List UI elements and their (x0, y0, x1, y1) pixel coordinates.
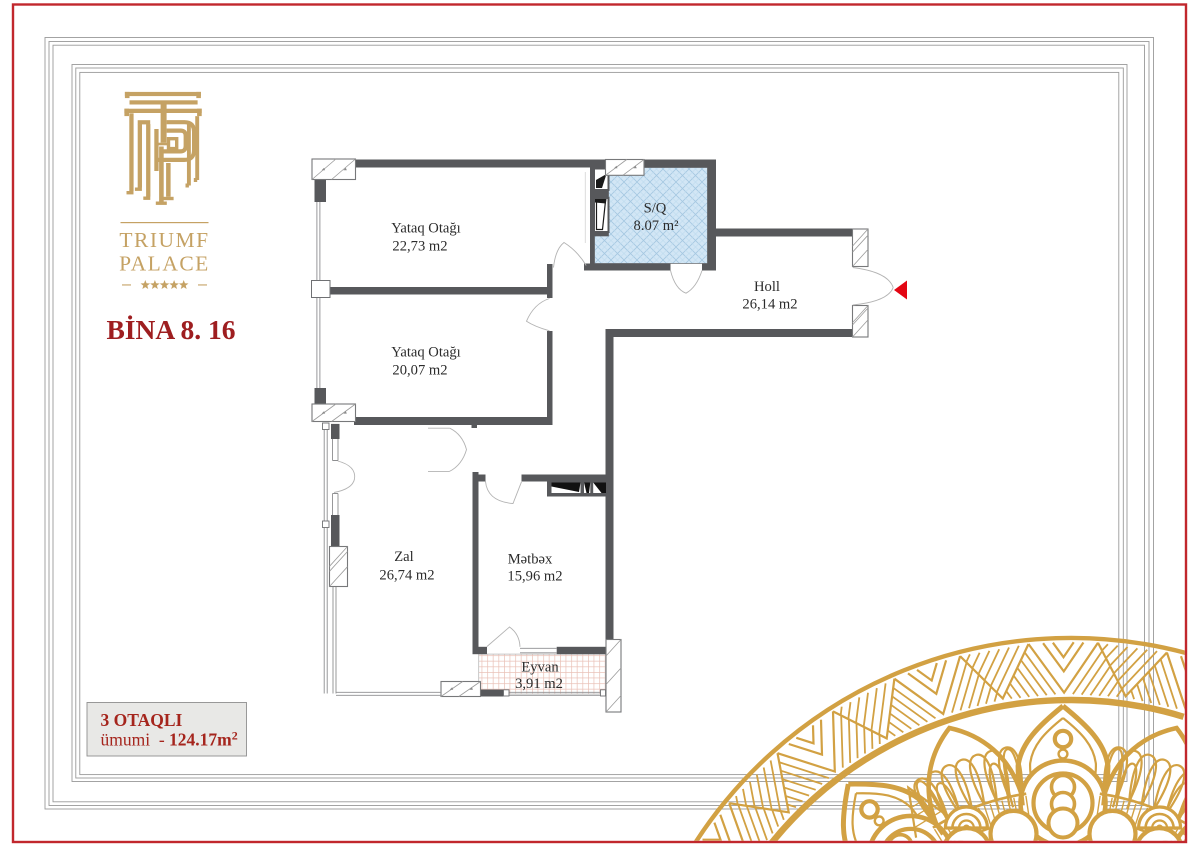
svg-text:Yataq Otağı: Yataq Otağı (391, 221, 460, 237)
svg-text:22,73 m2: 22,73 m2 (392, 239, 447, 255)
svg-text:ümumi - 124.17m2: ümumi - 124.17m2 (101, 729, 238, 750)
svg-text:3,91 m2: 3,91 m2 (515, 676, 563, 692)
svg-text:Holl: Holl (754, 279, 780, 295)
svg-text:TRIUMF: TRIUMF (119, 228, 209, 252)
svg-text:Mətbəx: Mətbəx (508, 552, 553, 568)
svg-text:PALACE: PALACE (119, 252, 210, 276)
svg-text:26,74 m2: 26,74 m2 (379, 568, 434, 584)
svg-text:8.07 m²: 8.07 m² (634, 218, 680, 234)
svg-text:BİNA 8. 16: BİNA 8. 16 (106, 314, 235, 345)
svg-text:15,96 m2: 15,96 m2 (507, 569, 562, 585)
svg-text:S/Q: S/Q (644, 201, 667, 217)
svg-text:Yataq Otağı: Yataq Otağı (391, 345, 460, 361)
svg-text:3 OTAQLI: 3 OTAQLI (101, 710, 183, 730)
svg-text:20,07 m2: 20,07 m2 (392, 363, 447, 379)
svg-text:26,14 m2: 26,14 m2 (742, 297, 797, 313)
svg-text:Eyvan: Eyvan (521, 660, 559, 676)
svg-text:Zal: Zal (394, 549, 413, 565)
